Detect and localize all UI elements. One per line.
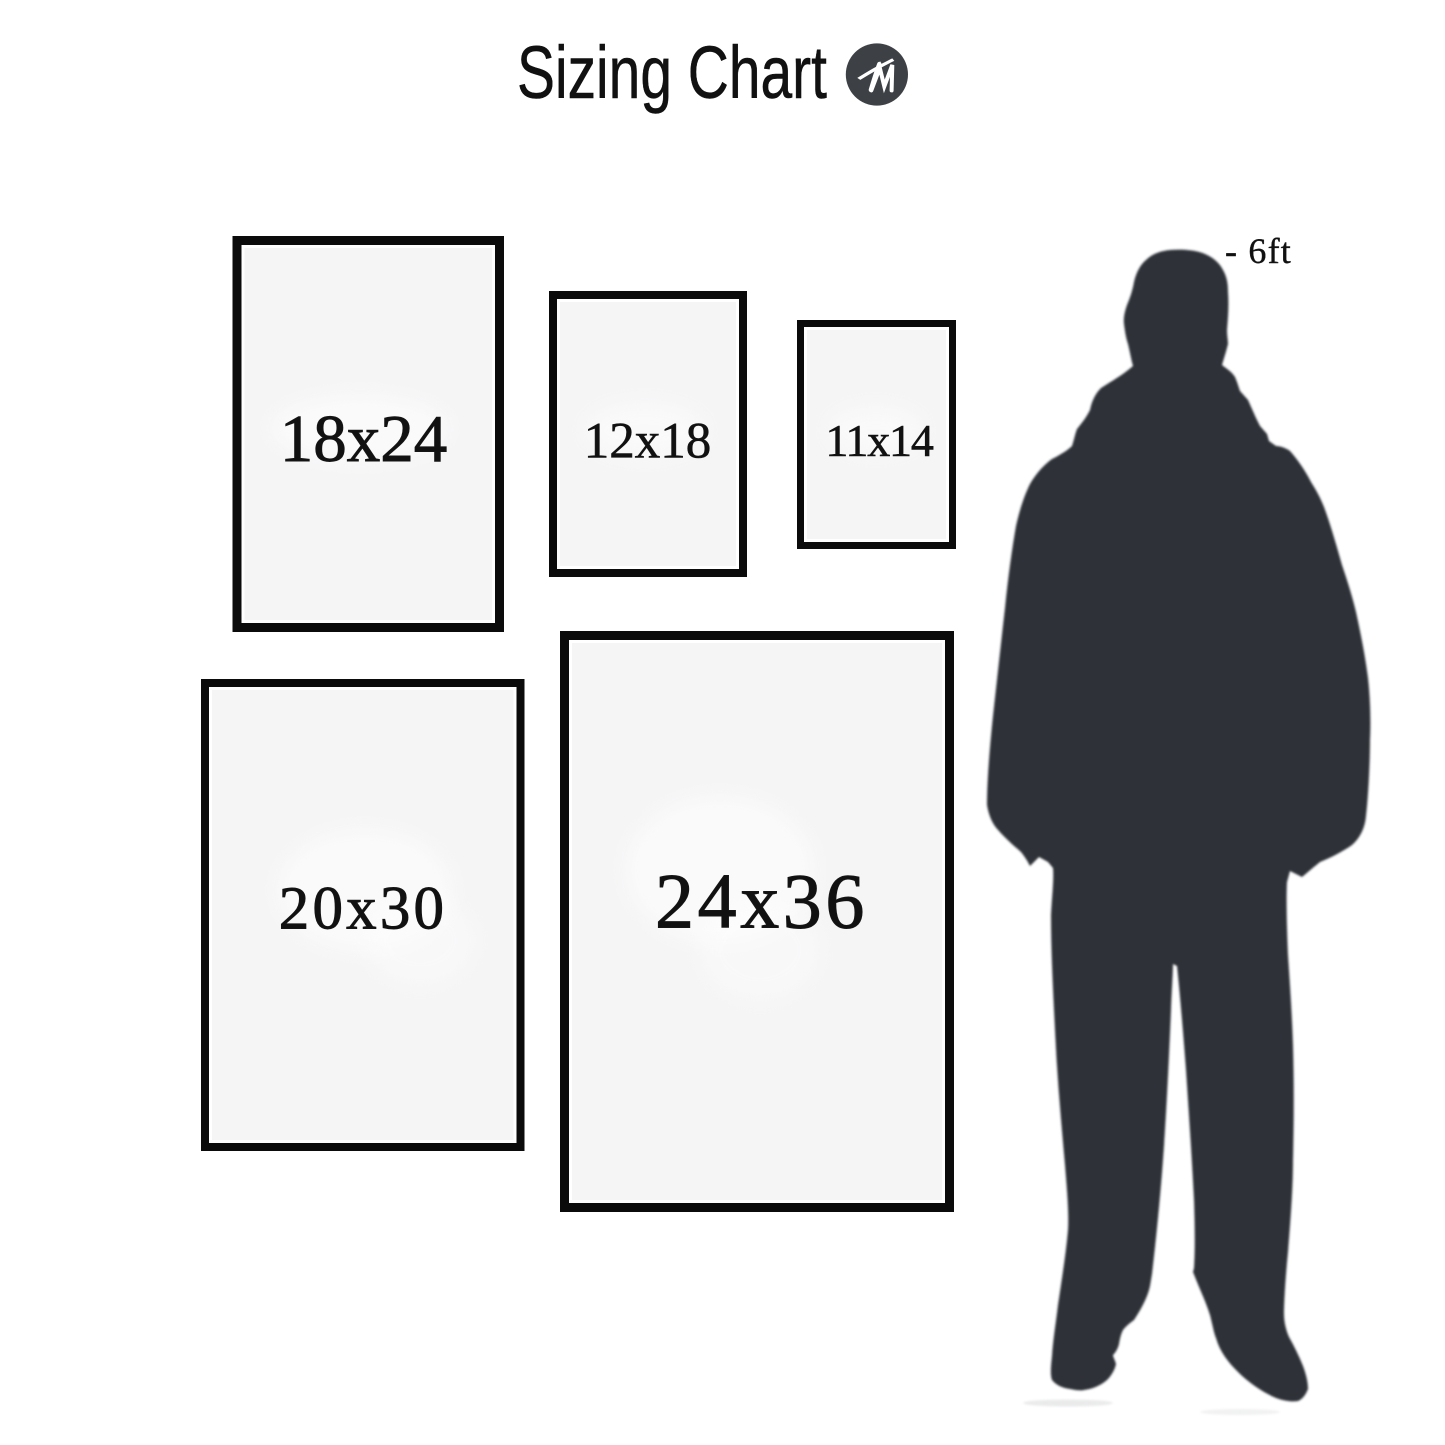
svg-text:18x24: 18x24 xyxy=(280,402,448,476)
svg-text:- 6ft: - 6ft xyxy=(1225,231,1292,271)
svg-text:24x36: 24x36 xyxy=(655,858,868,945)
svg-text:20x30: 20x30 xyxy=(279,876,448,943)
svg-text:11x14: 11x14 xyxy=(825,415,933,466)
svg-text:12x18: 12x18 xyxy=(584,414,712,470)
svg-text:Sizing Chart: Sizing Chart xyxy=(517,31,827,114)
